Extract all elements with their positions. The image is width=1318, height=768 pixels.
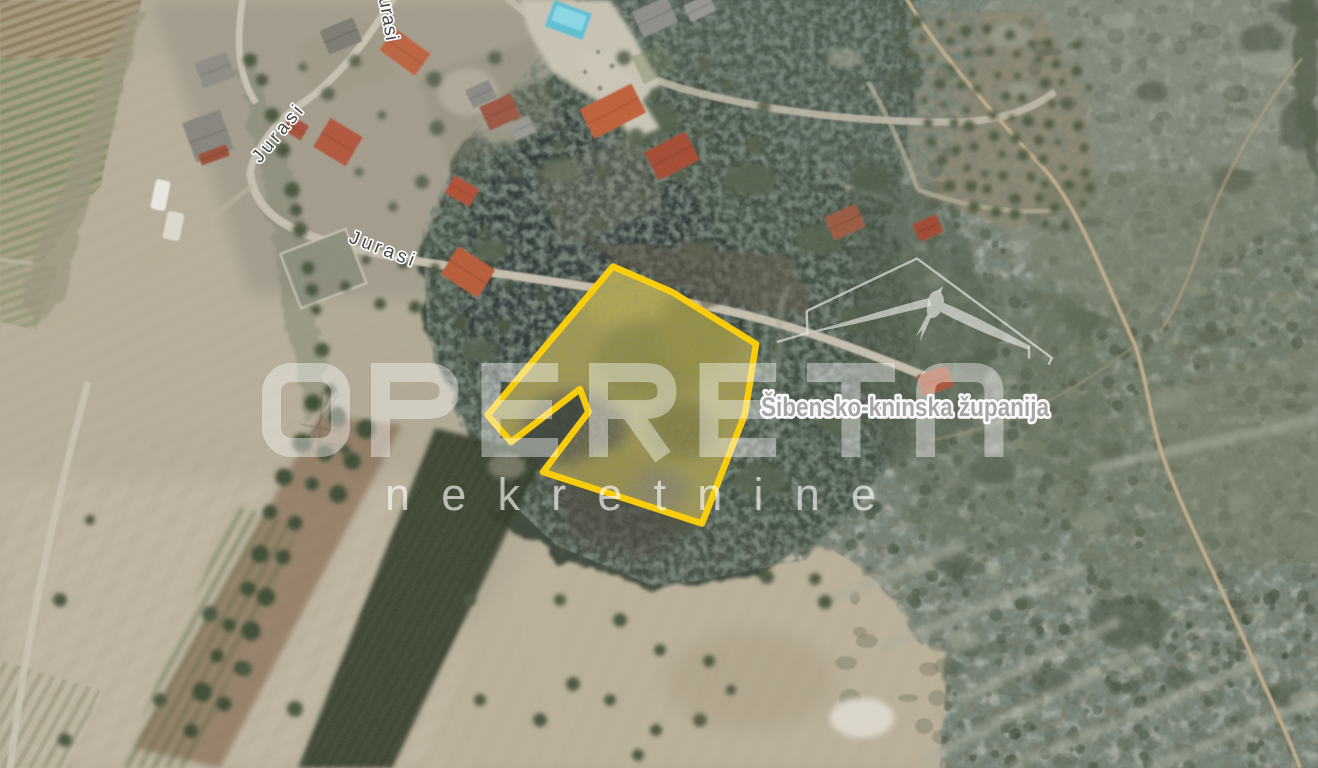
svg-text:nekretnine: nekretnine: [385, 469, 904, 520]
svg-text:Šibensko-kninska županija: Šibensko-kninska županija: [761, 391, 1050, 422]
